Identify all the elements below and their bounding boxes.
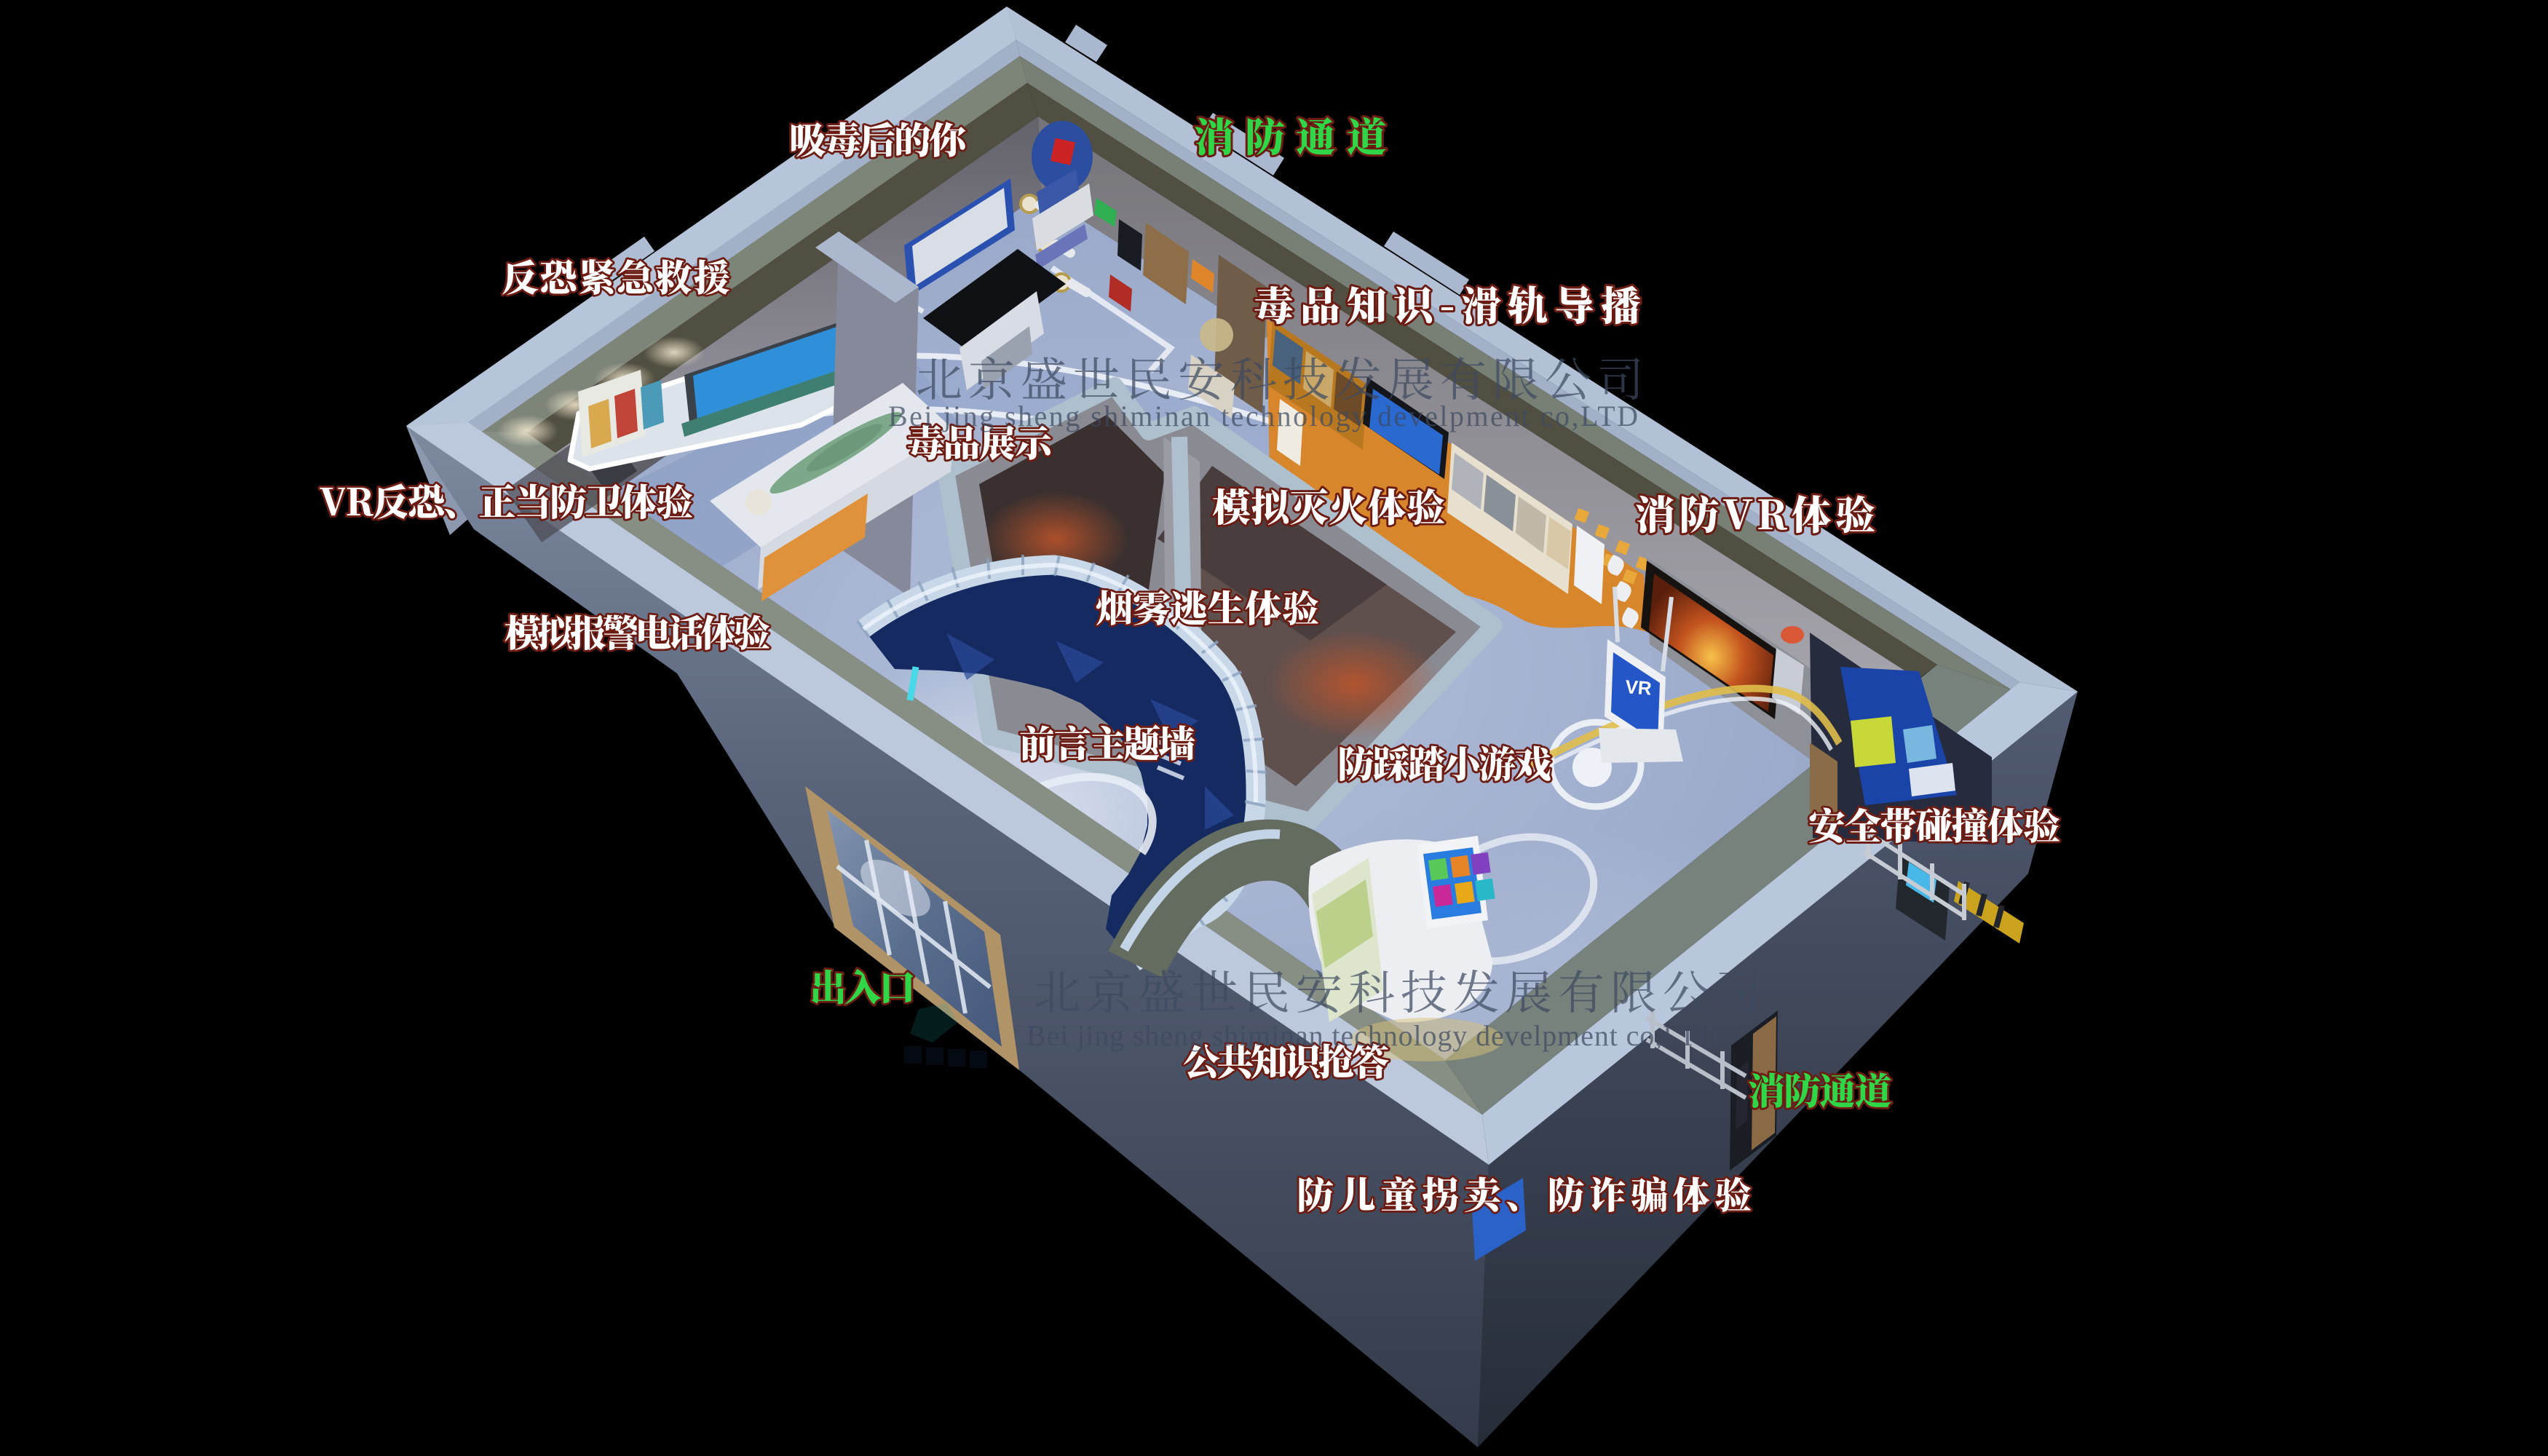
svg-text:Bei jing sheng shiminan techno: Bei jing sheng shiminan technology devel… xyxy=(1026,1019,1718,1052)
svg-text:VR: VR xyxy=(1625,676,1653,699)
svg-text:Bei jing sheng shiminan techno: Bei jing sheng shiminan technology devel… xyxy=(888,400,1638,432)
